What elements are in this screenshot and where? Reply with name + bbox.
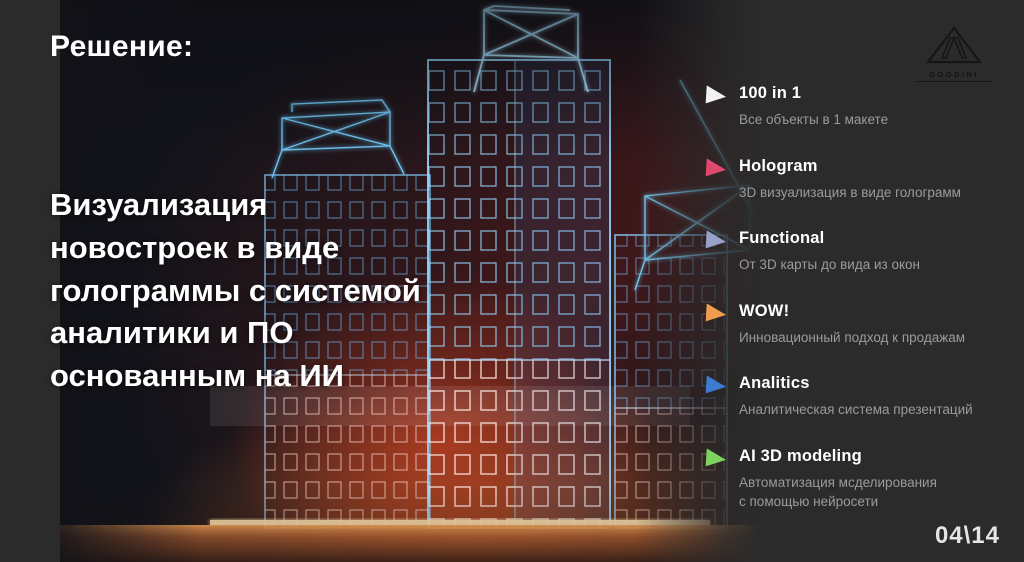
page-number: 04\14 [935, 522, 1000, 550]
feature-title: AI 3D modeling [739, 447, 1005, 466]
feature-item-ai-3d-modeling: AI 3D modeling Автоматизация мсделирован… [705, 447, 1005, 512]
feature-description: От 3D карты до вида из окон [739, 255, 1005, 275]
feature-description: Автоматизация мсделирования с помощью не… [739, 473, 1005, 512]
feature-item-hologram: Hologram 3D визуализация в виде голограм… [705, 157, 1005, 203]
triangle-marker-icon [704, 230, 728, 251]
presentation-slide: Решение: Визуализация новостроек в виде … [0, 0, 1024, 562]
goodini-logo: GOODINI [916, 26, 992, 82]
triangle-marker-icon [704, 376, 728, 397]
feature-item-analitics: Analitics Аналитическая система презента… [705, 374, 1005, 420]
feature-item-100in1: 100 in 1 Все объекты в 1 макете [705, 84, 1005, 130]
triangle-marker-icon [704, 448, 728, 469]
feature-item-functional: Functional От 3D карты до вида из окон [705, 229, 1005, 275]
logo-underline [916, 81, 992, 82]
feature-description: Аналитическая система презентаций [739, 400, 1005, 420]
feature-item-wow: WOW! Инновационный подход к продажам [705, 302, 1005, 348]
feature-title: Hologram [739, 157, 1005, 176]
feature-title: WOW! [739, 302, 1005, 321]
feature-title: Functional [739, 229, 1005, 248]
triangle-marker-icon [704, 303, 728, 324]
feature-description: Все объекты в 1 макете [739, 110, 1005, 130]
triangle-marker-icon [704, 85, 728, 106]
feature-description: 3D визуализация в виде голограмм [739, 183, 1005, 203]
solution-statement: Визуализация новостроек в виде голограмм… [50, 184, 510, 398]
logo-text: GOODINI [916, 70, 992, 79]
feature-title: Analitics [739, 374, 1005, 393]
feature-description: Инновационный подход к продажам [739, 328, 1005, 348]
logo-triangle-icon [926, 26, 982, 64]
triangle-marker-icon [704, 158, 728, 179]
slide-title: Решение: [50, 30, 193, 64]
feature-list: 100 in 1 Все объекты в 1 макете Hologram… [705, 84, 1005, 539]
feature-title: 100 in 1 [739, 84, 1005, 103]
